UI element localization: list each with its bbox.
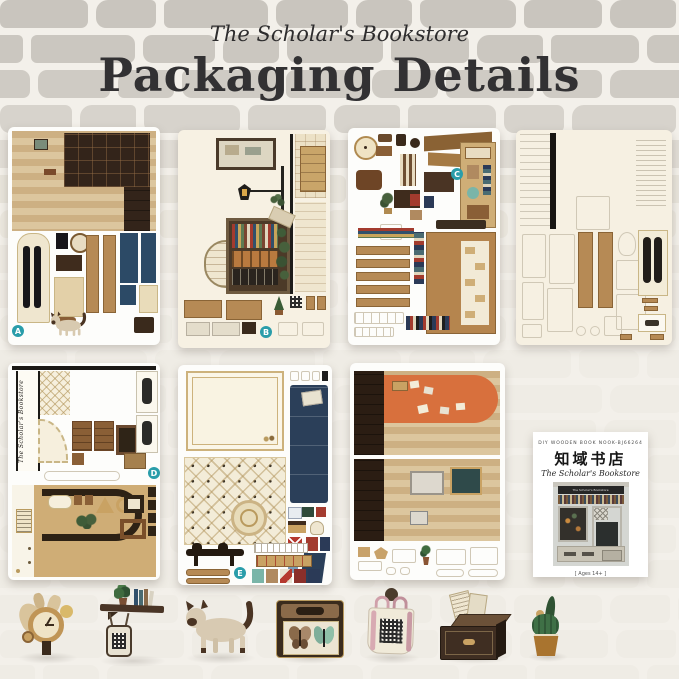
black-inset — [654, 237, 662, 283]
small-wood-bit — [650, 334, 664, 340]
brick-row — [0, 665, 679, 679]
brick — [647, 560, 679, 588]
clock-center — [364, 146, 367, 149]
navy-piece — [120, 285, 136, 305]
instruction-booklet: DIY WOODEN BOOK NOOK-BJ66264 知域书店 The Sc… — [533, 432, 648, 577]
door-panel-piece — [638, 230, 668, 296]
tote-bag-accessory — [361, 587, 419, 659]
comb-piece — [148, 513, 156, 523]
outline-circle — [590, 326, 600, 336]
brick — [647, 665, 679, 679]
bench-leg — [230, 556, 234, 566]
painting-frame — [450, 467, 482, 495]
comb-piece — [148, 487, 156, 497]
photo-display-window — [558, 506, 588, 542]
plant-piece — [380, 192, 395, 208]
chest-side-face — [496, 619, 506, 658]
arched-door-panel — [17, 233, 50, 323]
picture-detail — [225, 145, 239, 155]
paper-sheet-d: The Scholar's Bookstore — [8, 363, 160, 580]
plant-pot — [384, 208, 392, 214]
outline-piece — [400, 567, 410, 575]
booklet-english-title: The Scholar's Bookstore — [533, 469, 648, 478]
small-wood-bit — [620, 334, 632, 340]
art-card — [294, 569, 306, 583]
art-card — [266, 569, 278, 583]
paper-sheet-a: A — [8, 127, 160, 345]
wood-part — [378, 134, 392, 142]
page-title: Packaging Details — [0, 48, 679, 102]
outline-pair — [392, 549, 416, 563]
l-bracket-piece — [56, 233, 68, 249]
paper-sheet-f — [350, 363, 505, 580]
comb-piece — [148, 526, 156, 536]
door-inset — [34, 246, 41, 308]
vine-leaves — [268, 194, 288, 208]
outline-piece — [604, 316, 622, 336]
outline-pear — [618, 232, 636, 256]
clock-hand — [45, 624, 54, 626]
wall-shelf-accessory — [96, 583, 168, 663]
paper-sheet-b: B — [178, 130, 330, 348]
shelf-tab — [465, 279, 475, 286]
shelf-tab — [465, 247, 475, 254]
brick — [107, 665, 203, 679]
butterfly-teal-icon — [314, 626, 334, 650]
sheet-a-badge: A — [12, 325, 24, 337]
handle-slot — [296, 607, 324, 615]
small-wood-piece — [306, 296, 315, 310]
lattice-ornament — [40, 371, 70, 415]
brick — [579, 350, 639, 378]
art-card — [252, 569, 264, 583]
brick — [211, 665, 289, 679]
photo-shop-sign: The Scholar's Bookstore — [558, 486, 624, 494]
wood-strip — [598, 232, 613, 308]
brick — [572, 105, 676, 133]
awning-arch-piece — [38, 419, 68, 463]
qr-code — [112, 633, 126, 649]
envelope-piece — [301, 390, 323, 407]
sheet-e-badge: E — [234, 567, 246, 579]
bookstand-piece — [72, 421, 92, 451]
product-subtitle: The Scholar's Bookstore — [0, 22, 679, 46]
box-lid — [281, 604, 339, 618]
navy-panel — [141, 233, 156, 283]
sheet-d-badge: D — [148, 467, 160, 479]
plank — [356, 285, 410, 294]
wood-strip — [86, 235, 99, 313]
brick — [0, 665, 35, 679]
shelf-detail — [467, 205, 489, 219]
outline-piece — [302, 322, 324, 336]
shop-window-display — [204, 218, 290, 290]
plank — [356, 272, 410, 281]
brick — [371, 665, 459, 679]
specimen-panel — [283, 621, 339, 655]
comb-piece — [148, 500, 156, 510]
tab-piece-dark — [322, 371, 328, 381]
chest-handle — [463, 639, 475, 645]
brick-texture-light — [295, 202, 326, 292]
stamp — [288, 507, 302, 519]
shelf-plaque — [465, 147, 491, 159]
brick — [467, 665, 527, 679]
red-poster — [410, 194, 420, 206]
bench-back — [218, 543, 228, 549]
shelf-book — [134, 589, 138, 606]
brick — [647, 350, 679, 378]
lamp-glow — [242, 189, 247, 196]
screw-hole — [16, 569, 20, 573]
small-frame — [410, 511, 428, 525]
cabinet-side-panel — [124, 187, 150, 231]
topiary-pot — [275, 310, 283, 315]
outline-piece — [386, 567, 396, 575]
box-body — [276, 600, 344, 658]
framed-picture — [216, 138, 276, 170]
paper-sheet-diecut — [516, 130, 672, 345]
blackboard-piece — [116, 425, 138, 455]
siamese-cat-accessory — [183, 600, 257, 658]
wood-board — [226, 300, 262, 320]
ornate-frame — [186, 371, 284, 451]
brick — [535, 665, 639, 679]
navy-roof-panels — [290, 385, 328, 503]
bench-back — [192, 543, 202, 549]
stamp — [302, 507, 314, 517]
brick — [0, 490, 4, 518]
brick — [43, 665, 99, 679]
shelf-tab — [465, 311, 475, 318]
wood-part — [376, 146, 392, 156]
outline-piece — [278, 322, 298, 336]
outline-rect — [576, 196, 610, 230]
shelf-plant-leaves — [114, 585, 130, 599]
teal-plate — [467, 187, 479, 199]
wooden-chest-accessory — [438, 592, 508, 660]
slot — [645, 320, 659, 326]
ruler-strip — [254, 543, 308, 553]
dark-plank-column — [354, 459, 384, 541]
tiny-cut-piece — [212, 322, 240, 336]
cut-piece — [139, 285, 158, 313]
small-cross-piece — [74, 495, 82, 505]
art-card — [280, 569, 292, 583]
photo-drawer-base — [557, 546, 625, 562]
outline-piece — [547, 288, 573, 332]
brick — [248, 105, 326, 133]
peg-hole — [28, 547, 31, 550]
black-bar — [550, 133, 556, 229]
paper-sheet-c: C — [348, 128, 500, 345]
sheet-b-badge: B — [260, 326, 272, 338]
bench-outline — [468, 569, 498, 577]
chest-front-face — [440, 626, 498, 660]
shelf-middle — [232, 251, 278, 267]
basket-piece — [288, 521, 306, 533]
wooden-clock-accessory — [18, 595, 78, 661]
tiny-cut-piece — [186, 322, 210, 336]
small-wood-bit — [642, 298, 658, 303]
bench-leg — [194, 556, 198, 566]
wood-board — [184, 300, 222, 318]
sepia-poster — [410, 210, 422, 220]
shelf-tab — [475, 263, 485, 270]
booklet-cover-photo: The Scholar's Bookstore — [553, 482, 629, 566]
product-image: The Scholar's Bookstore Packaging Detail… — [0, 0, 679, 679]
topiary-cone — [274, 296, 284, 310]
wood-strip — [103, 235, 116, 313]
specimen-frame-piece — [124, 495, 144, 513]
tiled-floor — [184, 457, 286, 545]
dark-panel — [424, 172, 454, 192]
tan-cut-piece — [358, 547, 370, 557]
window-mullions — [232, 269, 278, 285]
clock-gear — [22, 631, 34, 643]
paper-sheet-e: E — [178, 365, 332, 585]
navy-panel — [120, 233, 138, 283]
potted-cactus-accessory — [528, 596, 564, 658]
potted-plant-leaves — [420, 545, 432, 557]
medallion-ring — [240, 509, 258, 527]
dark-plank-column — [354, 371, 384, 455]
photo-small-drawer — [602, 550, 622, 561]
stool-piece — [72, 453, 84, 465]
plank — [356, 259, 410, 268]
small-books — [44, 169, 56, 175]
booklet-model-line: DIY WOODEN BOOK NOOK-BJ66264 — [533, 441, 648, 446]
barcode-tag — [16, 509, 32, 533]
shop-sign-strip: The Scholar's Bookstore — [16, 371, 40, 471]
navy-fish-stamp — [320, 537, 330, 551]
tiny-card — [410, 380, 420, 388]
brick — [610, 385, 679, 413]
bench-outline — [436, 569, 464, 577]
tab-piece — [301, 371, 310, 381]
striped-column — [400, 154, 416, 186]
book-strip — [414, 232, 424, 284]
potted-plant-pot — [422, 557, 430, 565]
photo-drawer-slot — [582, 552, 594, 556]
shelf-book — [139, 590, 143, 606]
outline-piece — [470, 547, 498, 565]
clock-face-piece — [354, 136, 378, 160]
window-slot — [142, 378, 152, 404]
dark-wood-pair — [356, 170, 382, 190]
grid-strip — [354, 327, 394, 337]
bag-qr-code — [379, 619, 403, 644]
black-inset — [643, 237, 651, 283]
small-dresser — [56, 255, 82, 271]
lamp-lantern — [238, 184, 251, 200]
tiny-card — [423, 386, 433, 394]
rug-label — [392, 381, 408, 391]
marked-bar — [256, 555, 312, 567]
bench-seat — [186, 549, 244, 556]
window-frame-piece — [136, 415, 158, 453]
outline-piece — [358, 561, 382, 571]
butterfly-brown-icon — [289, 626, 311, 650]
book-stand — [300, 146, 326, 192]
round-knob — [410, 138, 420, 148]
booklet-ages-label: [ Ages 14+ ] — [533, 571, 648, 577]
booklet-chinese-title: 知域书店 — [533, 448, 648, 469]
navy-poster — [424, 196, 434, 208]
picture-detail — [245, 147, 261, 155]
cup-piece — [310, 521, 324, 535]
paw-tray — [48, 495, 72, 509]
outline-piece — [522, 324, 542, 338]
dark-part — [396, 134, 406, 146]
brick — [610, 595, 670, 623]
tiny-card — [440, 407, 450, 415]
outline-piece — [436, 549, 466, 565]
clock-base — [42, 641, 51, 655]
art-card — [308, 569, 320, 583]
portrait-card — [467, 165, 479, 179]
tall-shelf-piece — [460, 142, 496, 228]
sign-bar — [436, 220, 486, 229]
plank — [356, 246, 410, 255]
tiny-card — [456, 403, 465, 411]
orange-rug — [384, 375, 498, 423]
tab-piece — [312, 371, 320, 381]
stamp — [316, 507, 326, 517]
outline-piece — [522, 282, 544, 320]
book-rows — [232, 224, 278, 248]
shelf-board — [100, 604, 164, 613]
cat-cutout — [48, 311, 88, 337]
brick — [498, 385, 602, 413]
top-strip — [12, 366, 156, 370]
brick — [504, 105, 564, 133]
small-cross-piece — [85, 495, 93, 505]
tiny-card — [417, 404, 428, 414]
apothecary-cabinet — [64, 133, 150, 187]
outline-circle — [576, 326, 586, 336]
photo-glass-door — [596, 522, 618, 548]
window-frame-piece — [136, 371, 158, 413]
tan-cut-piece — [374, 547, 388, 559]
mini-chest-piece — [134, 317, 154, 333]
brick — [616, 630, 676, 658]
bookstand-piece — [94, 421, 114, 451]
blade-cut-piece — [44, 471, 120, 481]
outline-piece — [522, 234, 546, 278]
sketch-frame — [410, 471, 444, 495]
shelf-book — [148, 591, 154, 606]
plant-cluster — [74, 513, 100, 529]
sheet-c-badge: C — [451, 168, 463, 180]
window-plants — [276, 224, 290, 282]
small-wood-piece — [317, 296, 326, 310]
fine-print-block — [636, 136, 666, 206]
shelf-back — [461, 241, 489, 325]
slot-box — [638, 314, 666, 332]
door-inset — [23, 246, 30, 308]
bag-side-stripe — [406, 612, 412, 652]
wood-strip — [578, 232, 593, 308]
window-slot — [142, 421, 152, 445]
photo-book-row — [558, 495, 624, 504]
crumb-specks — [262, 435, 276, 443]
book-strip-bottom — [406, 316, 450, 330]
counter-panel — [12, 485, 156, 577]
tab-piece — [290, 371, 299, 381]
frame-piece — [120, 519, 146, 539]
mini-books — [483, 165, 491, 195]
ruled-block — [520, 134, 550, 226]
small-wood-bit — [644, 306, 658, 311]
bag-side-stripe — [370, 610, 376, 650]
outline-piece — [549, 234, 575, 284]
wood-pill — [186, 578, 230, 584]
butterfly-box-accessory — [276, 600, 344, 658]
peg-hole — [28, 561, 31, 564]
qr-piece — [290, 296, 302, 308]
ladder-piece — [124, 453, 146, 469]
hanging-qr-tag — [106, 625, 132, 657]
book-strip — [358, 228, 414, 238]
grid-strip — [354, 312, 404, 324]
brick — [647, 455, 679, 483]
plank — [356, 298, 410, 307]
specimen-inner — [128, 499, 140, 509]
bag-body — [367, 607, 415, 655]
floor-medallion — [231, 500, 267, 536]
photo-drawer-slot — [564, 552, 576, 556]
small-picture — [34, 139, 48, 150]
brick — [297, 665, 363, 679]
shelf-tab — [475, 295, 485, 302]
tiny-dark-piece — [242, 322, 256, 334]
cactus-pot — [532, 636, 560, 656]
wood-pill — [186, 569, 230, 576]
